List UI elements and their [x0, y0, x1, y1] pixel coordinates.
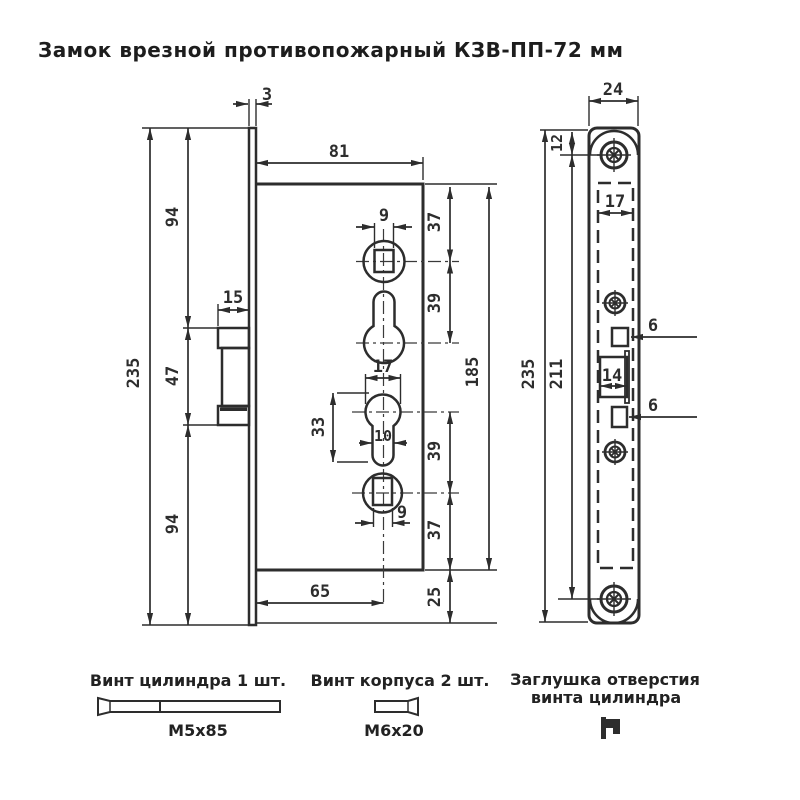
- latch-bolt: [218, 328, 249, 425]
- dim-keyhole-to-square-lower: 39: [425, 441, 445, 461]
- hardware-section: Винт цилиндра 1 шт. M5x85 Винт корпуса 2…: [90, 670, 700, 740]
- drawing-sheet: Замок врезной противопожарный КЗВ-ПП-72 …: [0, 0, 800, 800]
- body-screw-size: M6x20: [364, 721, 424, 740]
- dim-deadbolt-width: 14: [602, 366, 622, 386]
- dim-keyhole-stem: 10: [374, 427, 392, 445]
- body-screw-drawing: [375, 698, 418, 715]
- centerlines: [352, 229, 459, 606]
- dim-latch-height: 47: [163, 366, 183, 386]
- dim-square-to-bottom: 37: [425, 520, 445, 540]
- dim-keyhole-length: 33: [309, 417, 329, 437]
- latch-opening-bottom: [612, 407, 627, 427]
- body-screw-label: Винт корпуса 2 шт.: [311, 671, 490, 690]
- cylinder-screw-item: Винт цилиндра 1 шт. M5x85: [90, 671, 286, 740]
- faceplate-edge: [249, 128, 256, 625]
- dim-bottom-offset: 25: [425, 587, 445, 607]
- drawing-title: Замок врезной противопожарный КЗВ-ПП-72 …: [38, 38, 623, 62]
- dim-plate-width: 24: [603, 80, 623, 100]
- plug-label-line2: винта цилиндра: [531, 688, 681, 707]
- dim-bottom-square: 9: [397, 503, 407, 523]
- plug-item: Заглушка отверстия винта цилиндра: [510, 670, 700, 739]
- latch-bevel-edge: [220, 408, 247, 412]
- front-view: 3 81 235 94 47 94 15: [124, 85, 497, 625]
- dim-edge-to-square: 37: [425, 212, 445, 232]
- cylinder-screw-drawing: [98, 698, 280, 715]
- dim-backset: 65: [310, 582, 330, 602]
- dim-faceplate-thickness: 3: [262, 85, 272, 105]
- body-screw-item: Винт корпуса 2 шт. M6x20: [311, 671, 490, 740]
- dim-latch-protrusion: 15: [223, 288, 243, 308]
- dim-plate-height: 235: [519, 359, 539, 390]
- top-screw-hole: [597, 138, 631, 172]
- dim-top-square: 9: [379, 206, 389, 226]
- dim-top-to-first-hole: 12: [548, 134, 566, 152]
- cylinder-screw-size: M5x85: [168, 721, 228, 740]
- face-view-dimensions: 24 12 211 235 17 6 14 6: [519, 80, 697, 622]
- dim-body-width: 81: [329, 142, 349, 162]
- latch-opening-top: [612, 328, 628, 346]
- dim-latch-offset-top: 6: [648, 316, 658, 336]
- dim-top-to-latch: 94: [163, 207, 183, 227]
- upper-body-screw-hole: [602, 290, 628, 316]
- dim-latch-offset-bottom: 6: [648, 396, 658, 416]
- plug-icon: [601, 717, 620, 739]
- face-view: 24 12 211 235 17 6 14 6: [519, 80, 697, 623]
- front-view-dimensions: 3 81 235 94 47 94 15: [124, 85, 497, 625]
- lower-body-screw-hole: [602, 439, 628, 465]
- lock-technical-drawing: Замок врезной противопожарный КЗВ-ПП-72 …: [0, 0, 800, 800]
- dim-square-to-keyhole: 39: [425, 293, 445, 313]
- plug-label-line1: Заглушка отверстия: [510, 670, 700, 689]
- dim-holes-span: 211: [547, 359, 567, 390]
- dim-keyhole-dia: 17: [373, 357, 393, 377]
- dim-body-height: 185: [463, 357, 483, 388]
- bottom-screw-hole: [597, 582, 631, 616]
- dim-hidden-body-width: 17: [605, 192, 625, 212]
- dim-overall-height: 235: [124, 358, 144, 389]
- cylinder-screw-label: Винт цилиндра 1 шт.: [90, 671, 286, 690]
- dim-latch-to-bottom: 94: [163, 514, 183, 534]
